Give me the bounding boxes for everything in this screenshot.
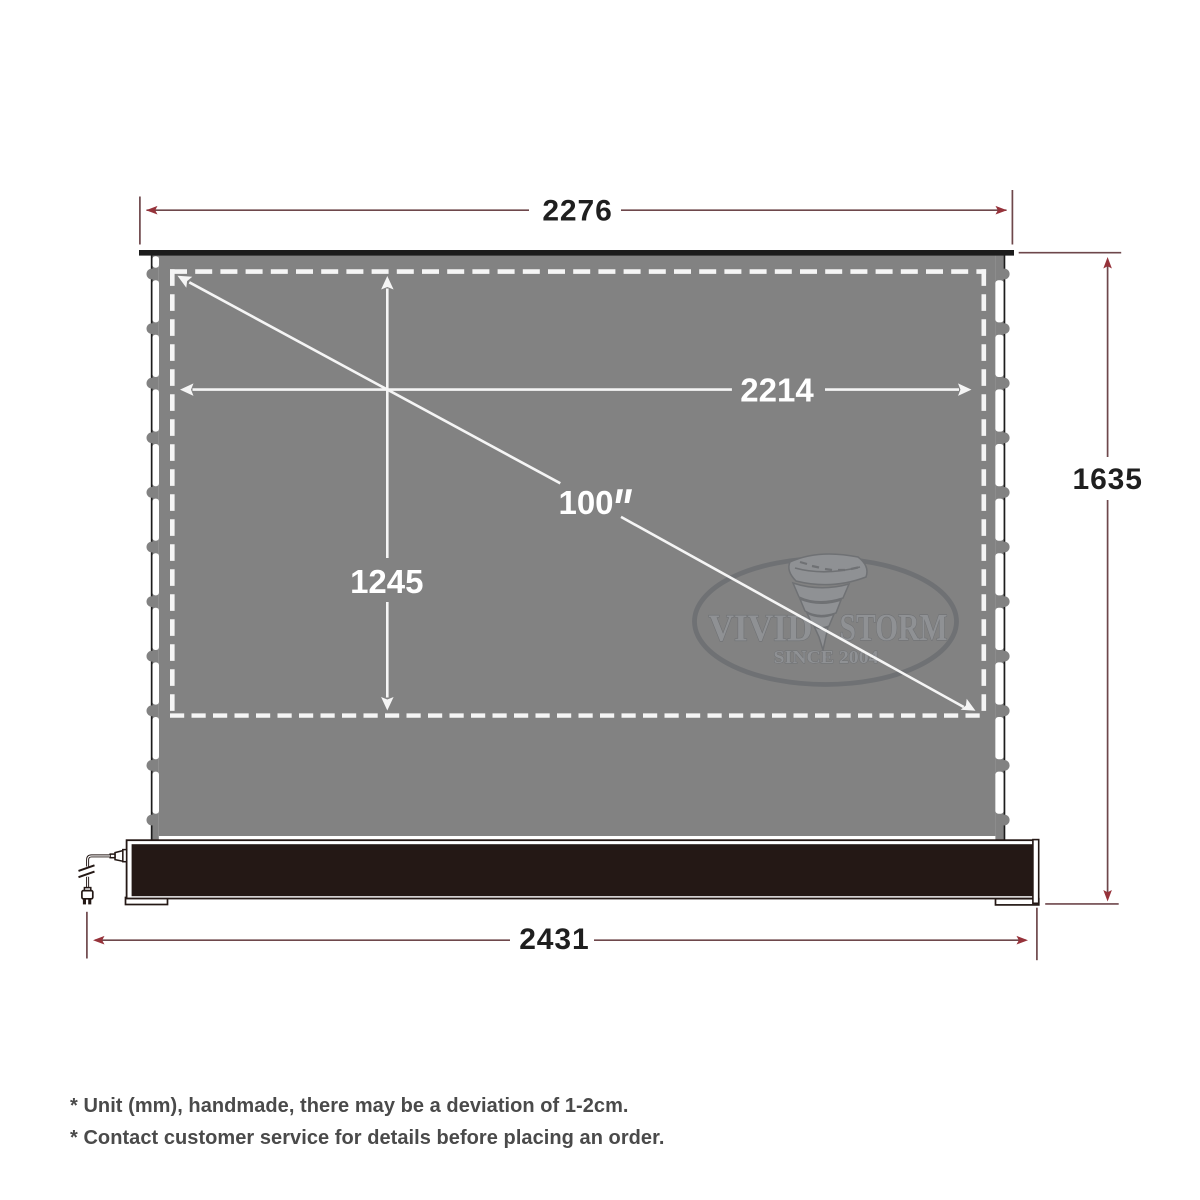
svg-text:* Unit (mm), handmade, there m: * Unit (mm), handmade, there may be a de…	[70, 1095, 629, 1117]
svg-text:1245: 1245	[350, 563, 423, 600]
svg-text:1635: 1635	[1073, 463, 1143, 496]
svg-text:100: 100	[558, 484, 613, 521]
svg-text:2276: 2276	[542, 195, 612, 228]
svg-text:2431: 2431	[519, 923, 589, 956]
svg-text:STORM: STORM	[840, 607, 948, 649]
svg-text:* Contact customer service for: * Contact customer service for details b…	[70, 1127, 664, 1149]
svg-text:2214: 2214	[740, 371, 814, 408]
